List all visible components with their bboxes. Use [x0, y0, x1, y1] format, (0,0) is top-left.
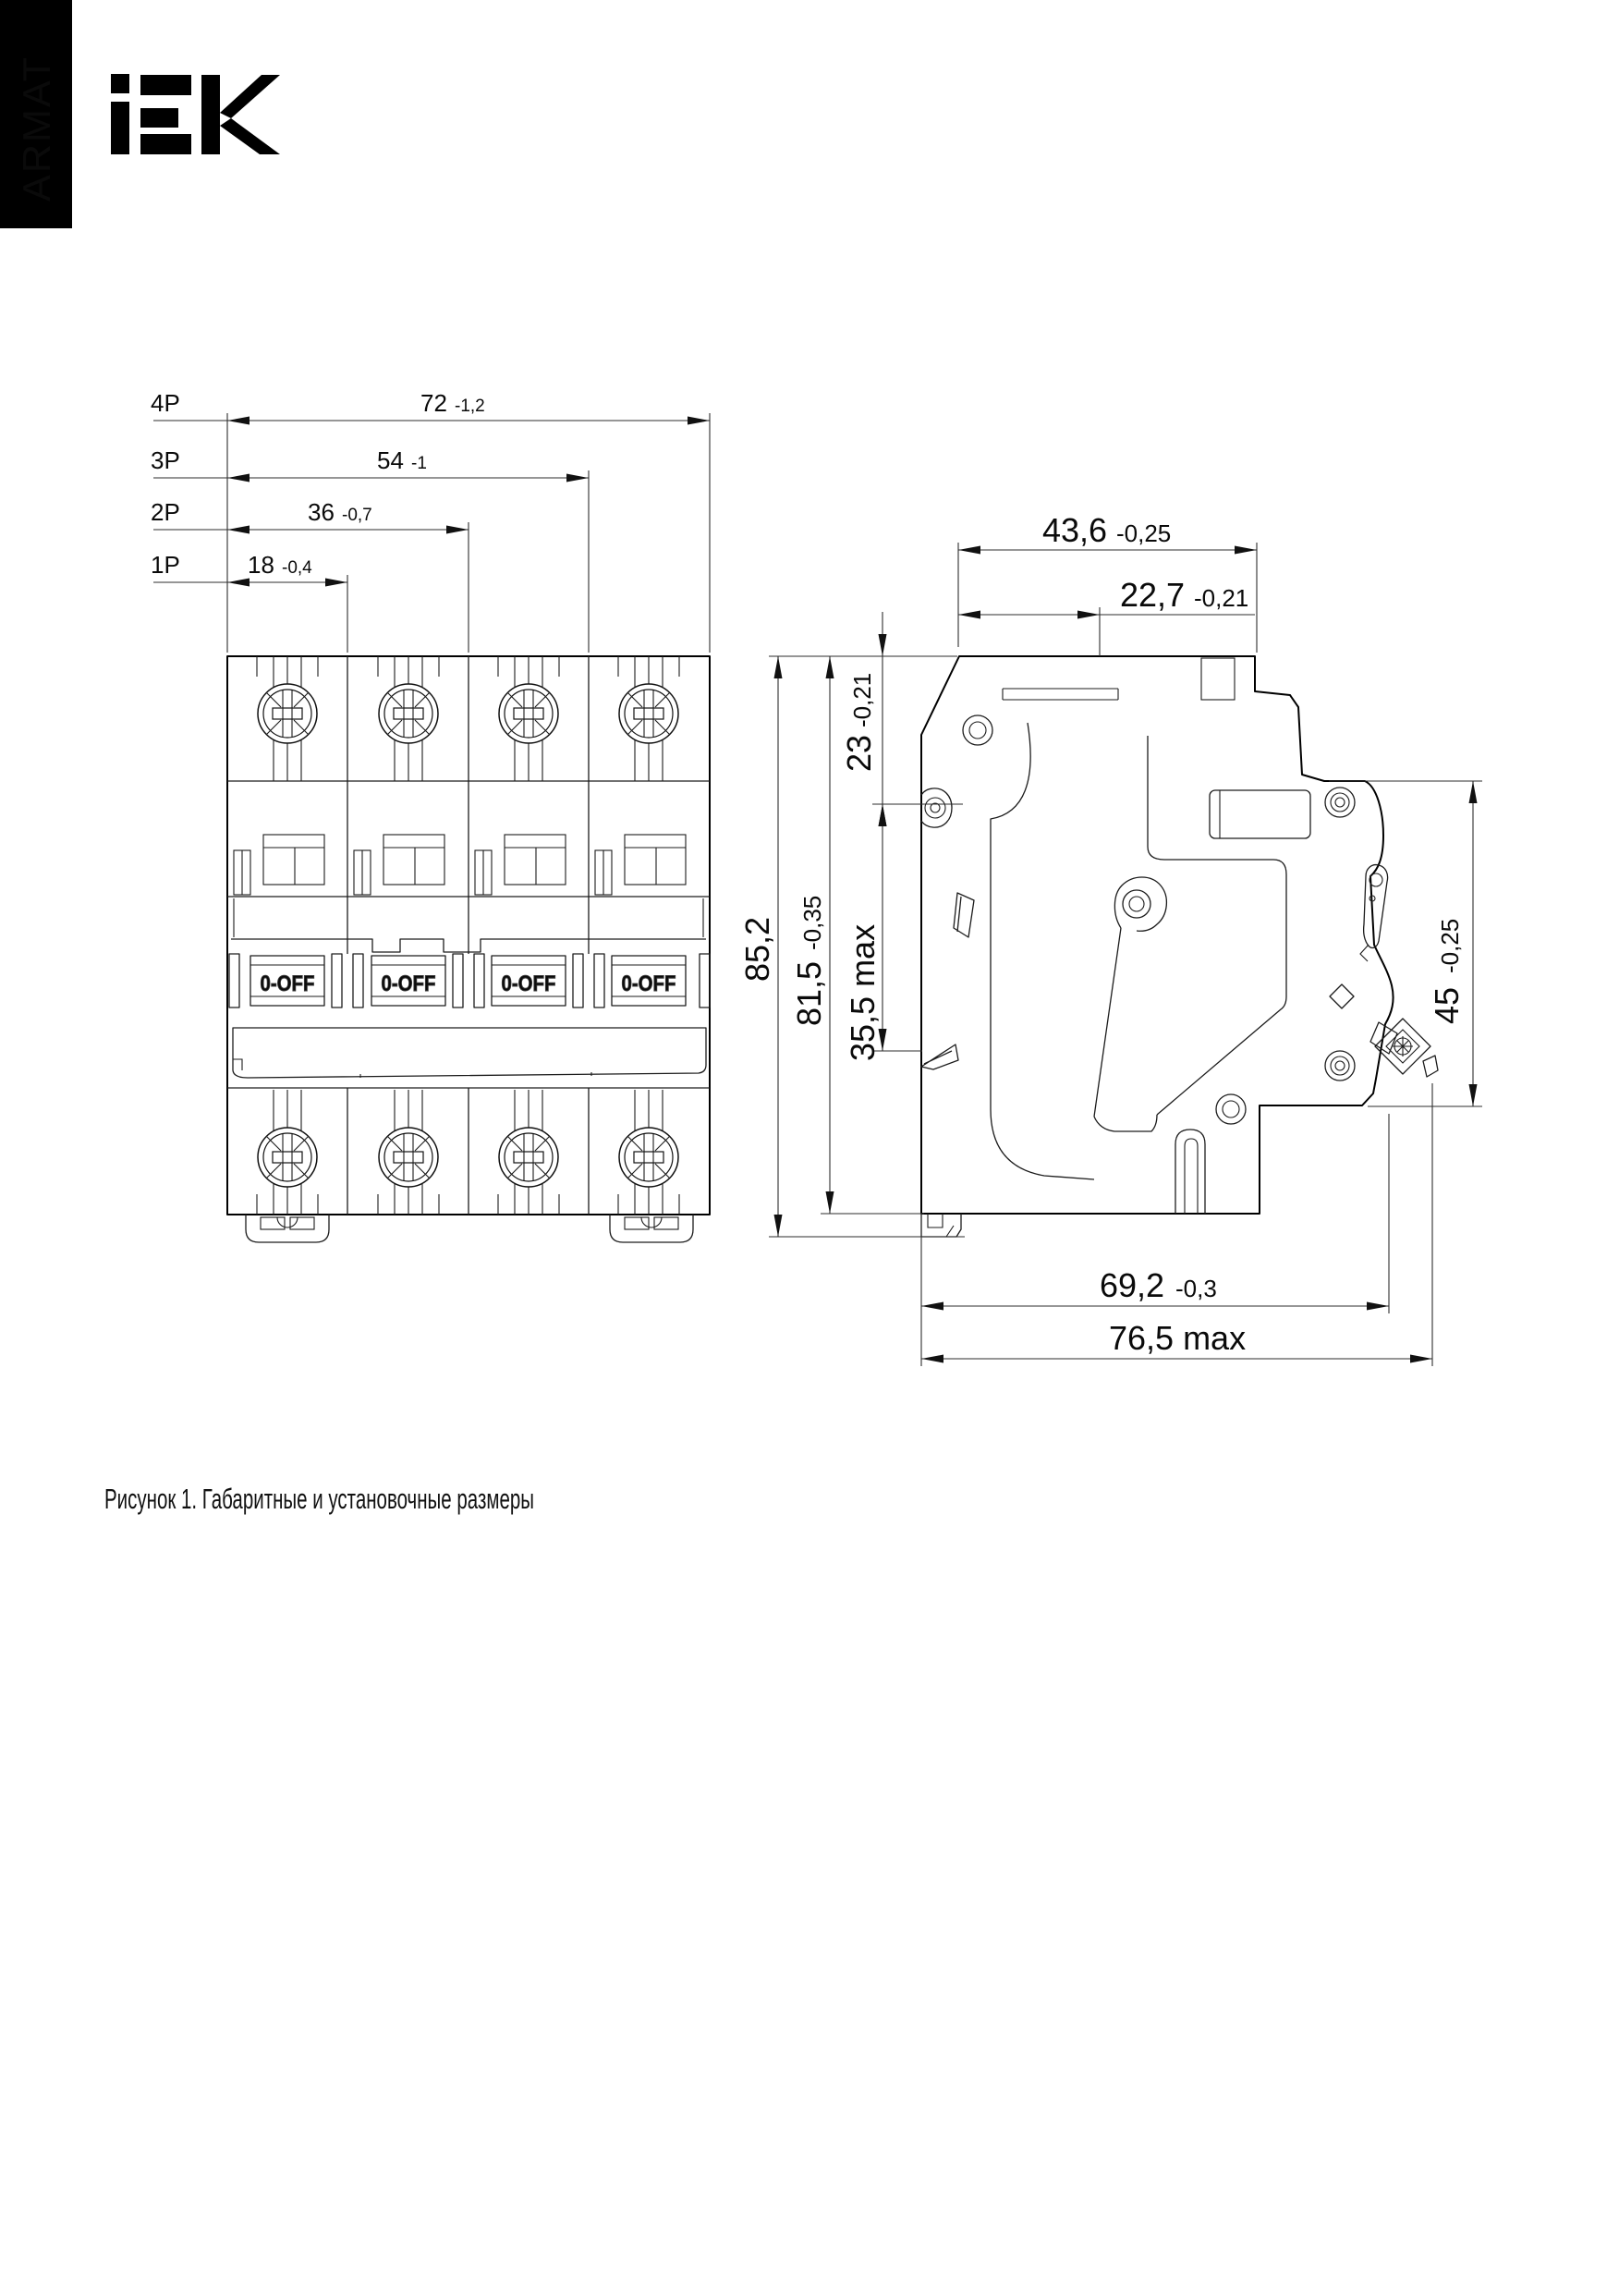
- dim-36-value: 36: [308, 498, 335, 526]
- dim-36-tol: -0,7: [342, 506, 372, 525]
- terminal-screw-icon: [498, 656, 559, 781]
- dim-43-6-value: 43,6: [1042, 511, 1107, 549]
- clip-block: [595, 835, 686, 895]
- toggle-state-label: 0-OFF: [502, 971, 556, 995]
- dim-23-value: 23: [840, 735, 878, 772]
- terminal-screw-icon: [378, 656, 439, 781]
- din-hook: [921, 788, 974, 1069]
- dim-43-6-tol: -0,25: [1116, 519, 1171, 547]
- terminal-screw-icon: [257, 1090, 318, 1215]
- drawing-page: ARMAT: [0, 0, 1619, 2296]
- clip-block: [234, 835, 324, 895]
- side-dimensions: 43,6 -0,25 22,7 -0,21 85,2 81,5 -0,35 23…: [738, 511, 1482, 1366]
- dim-54-value: 54: [377, 446, 404, 474]
- toggle-windows: 0-OFF 0-OFF 0-OFF 0-OFF: [229, 954, 710, 1008]
- iek-logo: [111, 74, 280, 154]
- dim-22-7-value: 22,7: [1120, 576, 1185, 614]
- dim-45-tol: -0,25: [1436, 919, 1464, 973]
- side-terminal-screw-icon: [1370, 1019, 1438, 1077]
- dim-35-5-value: 35,5 max: [844, 924, 882, 1061]
- din-tab: [610, 1215, 693, 1242]
- handle-bar: [233, 1028, 706, 1078]
- front-view: 0-OFF 0-OFF 0-OFF 0-OFF: [227, 656, 710, 1242]
- terminal-screw-icon: [618, 656, 679, 781]
- side-view: [921, 656, 1438, 1237]
- dim-81-5-value: 81,5: [790, 961, 828, 1026]
- dim-18-value: 18: [248, 551, 274, 579]
- dim-76-5-value: 76,5 max: [1109, 1319, 1246, 1357]
- terminal-screw-icon: [378, 1090, 439, 1215]
- toggle-state-label: 0-OFF: [261, 971, 315, 995]
- side-body: [921, 656, 1394, 1214]
- armat-sidebar: ARMAT: [0, 0, 72, 228]
- dim-69-2-value: 69,2: [1100, 1266, 1164, 1304]
- clip-block: [354, 835, 444, 895]
- dim-54-tol: -1: [411, 454, 427, 473]
- dim-81-5-tol: -0,35: [798, 896, 826, 950]
- dim-85-2-value: 85,2: [738, 917, 776, 982]
- front-dimensions: 4P 72 -1,2 3P 54 -1 2P 36 -0,7 1P 18 -0,…: [151, 389, 710, 653]
- toggle-state-label: 0-OFF: [622, 971, 676, 995]
- dim-72-tol: -1,2: [455, 397, 485, 416]
- dim-18-tol: -0,4: [282, 558, 312, 578]
- latch-lever: [1360, 865, 1388, 961]
- dim-72-value: 72: [420, 389, 447, 417]
- terminal-screw-icon: [618, 1090, 679, 1215]
- pole-label-2p: 2P: [151, 498, 180, 526]
- brand-vertical-label: ARMAT: [15, 55, 58, 202]
- terminal-screw-icon: [498, 1090, 559, 1215]
- side-toggle-window: [1210, 790, 1310, 838]
- pole-label-4p: 4P: [151, 389, 180, 417]
- pole-label-3p: 3P: [151, 446, 180, 474]
- clip-block: [475, 835, 566, 895]
- dim-23-tol: -0,21: [848, 673, 876, 727]
- din-tab: [246, 1215, 329, 1242]
- dim-69-2-tol: -0,3: [1175, 1275, 1217, 1302]
- dim-22-7-tol: -0,21: [1194, 584, 1248, 612]
- terminal-screw-icon: [257, 656, 318, 781]
- figure-caption: Рисунок 1. Габаритные и установочные раз…: [104, 1483, 534, 1515]
- pole-label-1p: 1P: [151, 551, 180, 579]
- dim-45-value: 45: [1428, 987, 1466, 1024]
- rivet-icon: [963, 715, 1355, 1124]
- toggle-state-label: 0-OFF: [382, 971, 436, 995]
